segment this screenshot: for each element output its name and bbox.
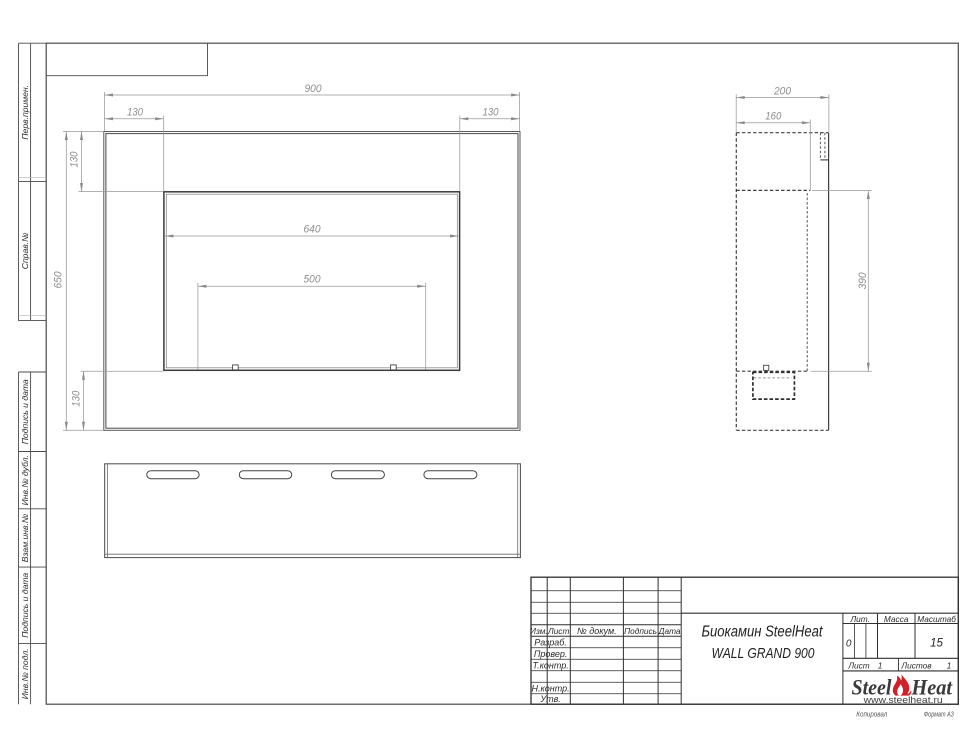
svg-text:Инв.№ подл.: Инв.№ подл. bbox=[20, 648, 30, 699]
svg-text:900: 900 bbox=[305, 83, 323, 95]
svg-text:Лист: Лист bbox=[547, 626, 569, 636]
svg-text:Копировал: Копировал bbox=[856, 712, 887, 719]
svg-text:130: 130 bbox=[69, 151, 81, 168]
svg-text:Разраб.: Разраб. bbox=[534, 637, 567, 647]
svg-text:Листов: Листов bbox=[900, 661, 932, 671]
svg-text:Лист: Лист bbox=[847, 661, 869, 671]
svg-text:130: 130 bbox=[71, 390, 83, 407]
svg-text:Формат А3: Формат А3 bbox=[924, 712, 954, 719]
svg-text:160: 160 bbox=[765, 111, 782, 123]
svg-text:1: 1 bbox=[878, 661, 883, 671]
svg-text:Лит.: Лит. bbox=[849, 614, 869, 624]
svg-text:390: 390 bbox=[857, 272, 869, 290]
svg-text:0: 0 bbox=[846, 639, 852, 650]
svg-text:15: 15 bbox=[930, 638, 943, 650]
svg-text:Подпись и дата: Подпись и дата bbox=[20, 573, 30, 638]
svg-text:Подпись: Подпись bbox=[624, 626, 657, 636]
svg-text:640: 640 bbox=[304, 223, 322, 235]
svg-text:Масса: Масса bbox=[884, 614, 909, 624]
svg-text:Масштаб: Масштаб bbox=[917, 614, 956, 624]
svg-text:www.steelheat.ru: www.steelheat.ru bbox=[863, 695, 943, 706]
svg-text:Биокамин SteelHeat: Биокамин SteelHeat bbox=[702, 623, 824, 640]
svg-text:200: 200 bbox=[773, 86, 792, 98]
svg-text:Подпись и дата: Подпись и дата bbox=[20, 379, 30, 444]
svg-text:№ докум.: № докум. bbox=[577, 626, 617, 636]
svg-text:Перв.примен.: Перв.примен. bbox=[20, 85, 30, 140]
svg-text:Инв.№ дубл.: Инв.№ дубл. bbox=[20, 455, 30, 505]
svg-text:Провер.: Провер. bbox=[534, 649, 568, 659]
svg-text:130: 130 bbox=[127, 107, 144, 119]
svg-text:1: 1 bbox=[947, 661, 952, 671]
svg-text:500: 500 bbox=[304, 274, 322, 286]
svg-text:WALL GRAND 900: WALL GRAND 900 bbox=[712, 646, 815, 662]
svg-text:Дата: Дата bbox=[658, 626, 681, 636]
svg-text:Изм.: Изм. bbox=[530, 626, 548, 636]
svg-text:Утв.: Утв. bbox=[539, 694, 560, 704]
svg-text:130: 130 bbox=[483, 106, 500, 118]
svg-text:650: 650 bbox=[53, 271, 65, 289]
svg-text:Т.контр.: Т.контр. bbox=[532, 660, 568, 670]
svg-text:Взам.инв.№: Взам.инв.№ bbox=[20, 514, 30, 562]
svg-text:Н.контр.: Н.контр. bbox=[532, 684, 570, 694]
svg-text:Справ.№: Справ.№ bbox=[20, 233, 30, 270]
